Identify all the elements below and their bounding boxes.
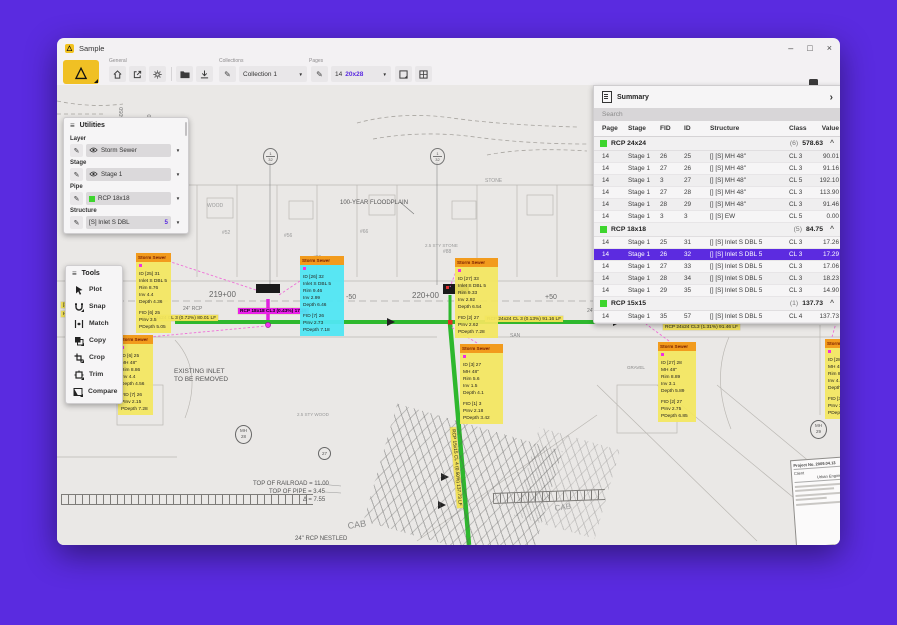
callout-line: PDepth 5.05 [139,324,169,331]
cell-structure: [] [S] MH 48" [710,201,789,208]
cell-stage: Stage 1 [628,201,660,208]
summary-row[interactable]: 14Stage 12625[] [S] MH 48"CL 390.01 [594,151,840,163]
edit-collection-button[interactable]: ✎ [219,66,236,82]
cell-value: 91.46 [815,201,839,208]
callout-body: ID [26] 32Inlet S DBL 5Rim 9.46Inv 2.99D… [300,265,344,336]
callout-line: PInv 2.18 [463,408,501,415]
plan-text: 2.5 STY STONE [425,243,458,248]
summary-row[interactable]: 14Stage 12531[] [S] Inlet S DBL 5CL 317.… [594,237,840,249]
callout-line: Depth 4.1 [463,390,501,397]
cell-id: 57 [684,313,710,320]
callout-header: Storm Sewer [460,344,503,353]
toolbar-group-collections: Collections [219,58,243,64]
annotation-callout[interactable]: Storm SewerID [6] 25MH 48"Rim 8.86Inv 4.… [118,335,153,415]
edit-page-button[interactable]: ✎ [311,66,328,82]
annotation-callout[interactable]: Storm SewerID [26] 32Inlet S DBL 5Rim 9.… [300,256,344,336]
cell-fid: 26 [660,251,684,258]
cell-stage: Stage 1 [628,153,660,160]
cell-id: 3 [684,213,710,220]
utilities-title: Utilities [80,122,105,129]
tool-label: Plot [89,286,102,293]
edit-structure-button[interactable]: ✎ [70,216,83,229]
cell-page: 14 [602,213,628,220]
callout-line: FID [7] 26 [303,313,342,320]
plan-text: TOP OF RAILROAD = 11.00 [253,481,329,487]
manhole-number: 28 [236,434,251,440]
trim-icon [73,369,84,380]
cell-class: CL 3 [789,189,815,196]
selection-marker-icon [661,353,664,356]
plan-text: -50 [346,294,356,301]
cell-class: CL 3 [789,165,815,172]
col-page[interactable]: Page [602,125,628,132]
plan-text: Δ = 7.55 [303,497,325,503]
utilities-section: Pipe✎RCP 18x18▼ [64,184,188,205]
summary-title: Summary [617,94,649,101]
chevron-down-icon[interactable]: ▼ [174,172,182,177]
callout-line: Inv 2.92 [458,297,496,304]
col-value[interactable]: Value [815,125,839,132]
cell-page: 14 [602,263,628,270]
download-button[interactable] [196,66,213,82]
cell-structure: [] [S] MH 48" [710,177,789,184]
plan-text: 220+00 [412,291,439,300]
selection-marker-icon [463,355,466,358]
callout-header: Storm Sewer [455,258,498,267]
col-stage[interactable]: Stage [628,125,660,132]
tool-item-snap[interactable]: Snap [66,298,122,315]
annotation-callout[interactable]: Storm SewerID [25] 31Inlet S DBL 5Rim 8.… [136,253,171,333]
callout-line: FID [2] 27 [661,399,694,406]
plan-text: #66 [360,229,368,235]
utilities-section-label: Structure [70,208,182,214]
callout-line: Rim 9.46 [303,288,342,295]
app-menu-button[interactable]: △ [63,60,99,84]
menu-icon[interactable]: ≡ [70,123,75,129]
cell-value: 192.10 [815,177,839,184]
utilities-section-label: Stage [70,160,182,166]
callout-line: PDepth 7.28 [121,406,151,413]
tool-item-copy[interactable]: Copy [66,332,122,349]
structure-select[interactable]: [S] Inlet S DBL5 [86,216,171,229]
callout-line: MH 48" [463,369,501,376]
search-input[interactable]: Search [594,108,840,121]
page-size: 20x28 [345,71,363,78]
col-class[interactable]: Class [789,125,815,132]
section-bottom: 32 [431,157,444,162]
callout-line: Rim 8.9 [828,371,840,378]
cell-page: 14 [602,239,628,246]
callout-line: Depth 5.89 [661,388,694,395]
cell-structure: [] [S] MH 48" [710,153,789,160]
cell-id: 25 [684,153,710,160]
callout-line: FID [3] 28 [828,396,840,403]
titleblock-bar [796,497,827,501]
callout-line: MH 48" [661,367,694,374]
folder-icon [180,70,190,79]
home-button[interactable] [109,66,126,82]
stage-value: Stage 1 [101,171,122,178]
utilities-panel: ≡ Utilities Layer✎Storm Sewer▼Stage✎Stag… [63,117,189,234]
callout-line: Rim 8.76 [139,285,169,292]
plot-icon [73,284,84,295]
export-button[interactable] [129,66,146,82]
callout-line: FID [6] 25 [139,310,169,317]
group-total: 84.75 [806,226,823,233]
callout-line: Depth 4.36 [139,299,169,306]
cell-structure: [] [S] Inlet S DBL 5 [710,251,789,258]
callout-line: Rim 8.89 [661,374,694,381]
summary-row[interactable]: 14Stage 133[] [S] EWCL 50.00 [594,211,840,223]
summary-row[interactable]: 14Stage 12834[] [S] Inlet S DBL 5CL 318.… [594,273,840,285]
callout-line: MH 48" [828,364,840,371]
tool-item-compare[interactable]: Compare [66,383,122,400]
cell-value: 18.23 [815,275,839,282]
cell-stage: Stage 1 [628,189,660,196]
copy-icon [73,335,84,346]
cell-value: 137.73 [815,313,839,320]
stage-select[interactable]: Stage 1 [86,168,171,181]
cell-structure: [] [S] MH 48" [710,189,789,196]
cell-stage: Stage 1 [628,213,660,220]
callout-line: PInv 3.2 [828,403,840,410]
page-fit-button[interactable] [395,66,412,82]
cell-stage: Stage 1 [628,239,660,246]
group-count: (6) [790,140,798,147]
callout-header: Storm Sewer [136,253,171,262]
cell-class: CL 5 [789,177,815,184]
chevron-down-icon[interactable]: ▼ [174,196,182,201]
callout-body: ID [6] 25MH 48"Rim 8.86Inv 4.4Depth 4.56… [118,344,153,415]
summary-row[interactable]: 14Stage 1327[] [S] MH 48"CL 5192.10 [594,175,840,187]
pencil-icon: ✎ [316,70,323,79]
callout-line: Inv 1.5 [463,383,501,390]
group-name: RCP 24x24 [611,140,646,147]
cell-stage: Stage 1 [628,275,660,282]
toolbar-group-pages: Pages [309,58,323,64]
chevron-down-icon[interactable]: ▼ [174,148,182,153]
cell-page: 14 [602,287,628,294]
cell-id: 29 [684,201,710,208]
cell-stage: Stage 1 [628,165,660,172]
open-folder-button[interactable] [176,66,193,82]
summary-row[interactable]: 14Stage 12829[] [S] MH 48"CL 391.46 [594,199,840,211]
plan-text: EXISTING INLET [174,368,225,375]
plan-text: 24" RCP NESTLED [295,536,347,542]
cell-page: 14 [602,177,628,184]
collapse-group-icon[interactable]: ^ [827,226,837,233]
cell-class: CL 3 [789,251,815,258]
edit-pipe-button[interactable]: ✎ [70,192,83,205]
cell-fid: 35 [660,313,684,320]
summary-icon [602,91,612,103]
annotation-callout[interactable]: Storm SewerID [27] 33Inlet S DBL 5Rim 9.… [455,258,498,338]
callout-line: FID [2] 27 [458,315,496,322]
cell-id: 27 [684,177,710,184]
summary-panel: Summary › Search Page Stage FID ID Struc… [593,85,840,324]
cell-value: 17.29 [815,251,839,258]
manhole-symbol: MH28 [235,425,252,444]
cell-structure: [] [S] Inlet S DBL 5 [710,239,789,246]
callout-body: ID [27] 28MH 48"Rim 8.89Inv 3.1Depth 5.8… [658,351,696,422]
callout-line: PDepth 5.79 [828,410,840,417]
cell-fid: 27 [660,263,684,270]
crop-icon [73,352,84,363]
collapse-group-icon[interactable]: ^ [827,300,837,307]
cell-page: 14 [602,201,628,208]
cell-structure: [] [S] Inlet S DBL 5 [710,275,789,282]
callout-line: PInv 2.15 [121,399,151,406]
utilities-section-label: Layer [70,136,182,142]
cell-class: CL 3 [789,275,815,282]
col-id[interactable]: ID [684,125,710,132]
plan-text: #52 [222,230,230,236]
tool-label: Crop [89,354,105,361]
match-icon [73,318,84,329]
callout-header: Storm Sewer [300,256,344,265]
plan-text: 2.5 STY WOOD [297,412,329,417]
annotation-callout[interactable]: Storm SewerID [27] 28MH 48"Rim 8.89Inv 3… [658,342,696,422]
cell-value: 90.01 [815,153,839,160]
callout-line: PInv 2.75 [661,406,694,413]
cell-page: 14 [602,165,628,172]
pipe-label[interactable]: RCP 24x24 CL3 (1.31%) 91.46 LF [663,324,740,330]
pencil-icon: ✎ [224,70,231,79]
callout-line: Depth 4.56 [121,381,151,388]
summary-group-header[interactable]: RCP 18x18(5)84.75^ [594,223,840,237]
annotation-callout[interactable]: Storm SewerID [28] 29MH 48"Rim 8.9Inv 4.… [825,339,840,419]
summary-row[interactable]: 14Stage 12733[] [S] Inlet S DBL 5CL 317.… [594,261,840,273]
plan-text: +50 [545,294,557,301]
callout-line: ID [26] 32 [303,274,342,281]
callout-line: Inlet S DBL 5 [458,283,496,290]
callout-line: Depth 6.46 [303,302,342,309]
group-name: RCP 18x18 [611,226,646,233]
callout-line: Inlet S DBL 5 [303,281,342,288]
cell-stage: Stage 1 [628,177,660,184]
summary-group-header[interactable]: RCP 15x15(1)137.73^ [594,297,840,311]
collection-value: Collection 1 [243,71,277,78]
cell-page: 14 [602,153,628,160]
pipe-value: RCP 18x18 [98,195,130,202]
utilities-row-stage: ✎Stage 1▼ [70,168,182,181]
cell-value: 91.16 [815,165,839,172]
plan-text: WOOD [207,203,223,209]
layer-value: Storm Sewer [101,147,137,154]
tool-item-crop[interactable]: Crop [66,349,122,366]
cell-fid: 3 [660,177,684,184]
cell-class: CL 4 [789,313,815,320]
col-structure[interactable]: Structure [710,125,789,132]
utilities-row-pipe: ✎RCP 18x18▼ [70,192,182,205]
callout-line: PDepth 7.28 [458,329,496,336]
plan-text: 219+00 [209,290,236,299]
summary-row[interactable]: 14Stage 13557[] [S] Inlet S DBL 5CL 4137… [594,311,840,323]
callout-line: Inv 4.4 [139,292,169,299]
callout-body: ID [27] 33Inlet S DBL 5Rim 9.33Inv 2.92D… [455,267,498,338]
station-marker-symbol: 27 [318,447,331,460]
tool-label: Copy [89,337,106,344]
structure-count-badge: 5 [165,219,168,226]
cell-value: 14.90 [815,287,839,294]
page-number: 14 [335,71,342,78]
collection-select[interactable]: Collection 1 ▼ [239,66,307,82]
cell-id: 32 [684,251,710,258]
page-select[interactable]: 14 20x28 ▼ [331,66,391,82]
edit-layer-button[interactable]: ✎ [70,144,83,157]
tool-item-plot[interactable]: Plot [66,281,122,298]
selection-marker-icon [303,267,306,270]
callout-line: PDepth 3.42 [463,415,501,422]
home-icon [113,70,122,79]
summary-group-header[interactable]: RCP 24x24(6)578.63^ [594,137,840,151]
selection-marker-icon [139,264,142,267]
cell-fid: 3 [660,213,684,220]
cell-page: 14 [602,313,628,320]
section-marker-symbol: 132 [430,148,445,165]
callout-line: Depth 4.49 [828,385,840,392]
cell-stage: Stage 1 [628,263,660,270]
chevron-right-icon[interactable]: › [830,92,833,103]
cell-stage: Stage 1 [628,313,660,320]
callout-line: PInv 3.5 [139,317,169,324]
callout-line: ID [3] 27 [463,362,501,369]
layer-select[interactable]: Storm Sewer [86,144,171,157]
chevron-down-icon: ▼ [299,72,303,77]
callout-header: Storm Sewer [825,339,840,348]
summary-row[interactable]: 14Stage 12728[] [S] MH 48"CL 3113.90 [594,187,840,199]
pipe-color-swatch [89,196,95,202]
cell-structure: [] [S] EW [710,213,789,220]
callout-line: FID [1] 3 [463,401,501,408]
cell-class: CL 3 [789,263,815,270]
cell-value: 17.26 [815,239,839,246]
cell-value: 17.06 [815,263,839,270]
scrollbar[interactable] [185,122,187,136]
callout-line: Inv 3.1 [661,381,694,388]
plan-text: #56 [284,233,292,239]
callout-header: Storm Sewer [658,342,696,351]
app-logo-icon: △ [65,44,74,53]
utilities-section: Structure✎[S] Inlet S DBL5▼ [64,208,188,229]
cell-stage: Stage 1 [628,287,660,294]
cell-id: 26 [684,165,710,172]
col-fid[interactable]: FID [660,125,684,132]
tool-item-trim[interactable]: Trim [66,366,122,383]
callout-line: Rim 5.6 [463,376,501,383]
cell-value: 113.90 [815,189,839,196]
tool-item-match[interactable]: Match [66,315,122,332]
edit-stage-button[interactable]: ✎ [70,168,83,181]
cell-value: 0.00 [815,213,839,220]
collapse-all-icon[interactable]: ^ [839,125,840,132]
compare-icon [73,386,83,397]
app-window: △ Sample – □ × △ General Collections Pag… [57,38,840,545]
callout-line: FID [7] 26 [121,392,151,399]
page-single-icon [399,70,408,79]
callout-line: Depth 6.54 [458,304,496,311]
pipe-color-swatch [600,300,607,307]
utilities-section-label: Pipe [70,184,182,190]
plan-text: 100-YEAR FLOODPLAIN [340,200,408,206]
utilities-row-layer: ✎Storm Sewer▼ [70,144,182,157]
callout-line: Inv 4.4 [121,374,151,381]
page-grid-button[interactable] [415,66,432,82]
callout-body: ID [25] 31Inlet S DBL 5Rim 8.76Inv 4.4De… [136,262,171,333]
cell-id: 31 [684,239,710,246]
chevron-down-icon[interactable]: ▼ [174,220,182,225]
pipe-select[interactable]: RCP 18x18 [86,192,171,205]
plan-titleblock: Project No. 2009.04.13 Client Urban Engi… [790,456,840,545]
settings-button[interactable] [149,66,166,82]
cell-fid: 27 [660,165,684,172]
plan-text: TOP OF PIPE = 3.45 [269,489,325,495]
cell-structure: [] [S] Inlet S DBL 5 [710,263,789,270]
maximize-button[interactable]: □ [807,38,812,58]
cell-fid: 27 [660,189,684,196]
plan-text: #88 [443,249,451,255]
desktop: { "window": {"title": "Sample"}, "icons"… [0,0,897,625]
group-name: RCP 15x15 [611,300,646,307]
page-grid-icon [419,70,428,79]
group-total: 578.63 [802,140,823,147]
summary-row[interactable]: 14Stage 12935[] [S] Inlet S DBL 5CL 314.… [594,285,840,297]
callout-line: Rim 9.33 [458,290,496,297]
plan-text: 24" RCP [183,306,202,312]
collapse-group-icon[interactable]: ^ [827,140,837,147]
callout-line: PDepth 7.18 [303,327,342,334]
pipe-color-swatch [600,140,607,147]
callout-line: ID [27] 28 [661,360,694,367]
menu-icon[interactable]: ≡ [72,271,77,277]
selection-marker-icon [828,350,831,353]
eye-icon [89,147,98,155]
close-button[interactable]: × [827,38,832,58]
selected-pipe-label[interactable]: RCP 18x18 CL3 (0.43%) 17.29 [238,308,309,314]
cell-id: 34 [684,275,710,282]
cell-structure: [] [S] MH 48" [710,165,789,172]
plan-text: TO BE REMOVED [174,376,228,383]
cell-stage: Stage 1 [628,251,660,258]
callout-line: ID [6] 25 [121,353,151,360]
minimize-button[interactable]: – [788,38,793,58]
callout-line: Rim 8.86 [121,367,151,374]
cell-fid: 26 [660,153,684,160]
cell-fid: 25 [660,239,684,246]
annotation-callout[interactable]: Storm SewerID [3] 27MH 48"Rim 5.6Inv 1.5… [460,344,503,424]
callout-line: ID [25] 31 [139,271,169,278]
cell-fid: 28 [660,275,684,282]
plan-text: SAN [510,333,520,339]
structure-value: [S] Inlet S DBL [89,219,130,226]
callout-line: Inlet S DBL 5 [139,278,169,285]
tool-label: Trim [89,371,103,378]
callout-body: ID [3] 27MH 48"Rim 5.6Inv 1.5Depth 4.1FI… [460,353,503,424]
callout-line: MH 48" [121,360,151,367]
cell-id: 28 [684,189,710,196]
plan-text: STONE [485,178,502,184]
tool-label: Match [89,320,109,327]
gear-icon [153,70,162,79]
tools-title: Tools [82,270,100,277]
summary-row[interactable]: 14Stage 12726[] [S] MH 48"CL 391.16 [594,163,840,175]
summary-row-selected[interactable]: 14Stage 12632[] [S] Inlet S DBL 5CL 317.… [594,249,840,261]
utilities-section: Stage✎Stage 1▼ [64,160,188,181]
tool-label: Snap [89,303,106,310]
cell-id: 33 [684,263,710,270]
section-marker-symbol: 132 [263,148,278,165]
callout-header: Storm Sewer [118,335,153,344]
